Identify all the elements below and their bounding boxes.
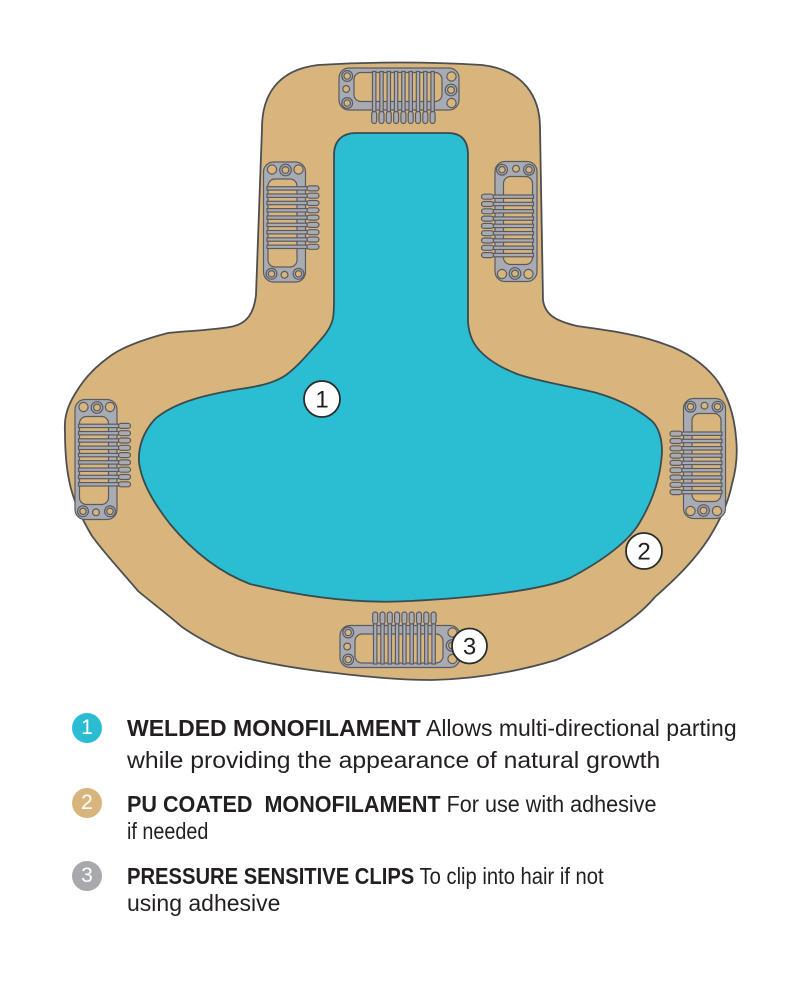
svg-text:2: 2	[637, 539, 650, 566]
svg-text:3: 3	[463, 634, 476, 661]
svg-text:1: 1	[315, 387, 328, 414]
